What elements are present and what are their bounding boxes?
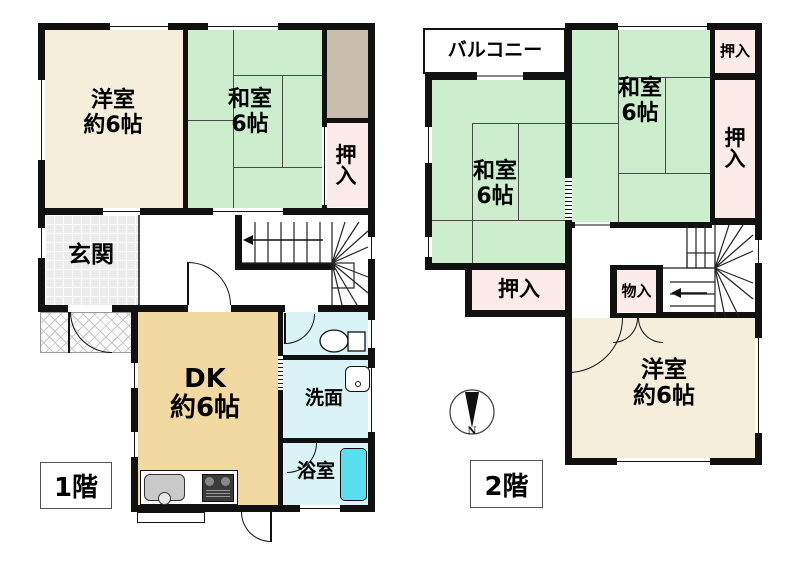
staircase-f1 xyxy=(235,215,375,305)
f1-storage-brown xyxy=(327,30,368,118)
f2-closet-bottom-label: 押入 xyxy=(479,275,559,305)
f2-closet-right-label: 押入 xyxy=(721,118,749,180)
sliding-door-marker xyxy=(565,177,572,220)
window-marker xyxy=(110,23,168,30)
window-marker xyxy=(38,228,45,258)
exterior-step xyxy=(137,512,205,523)
window-marker xyxy=(755,338,762,433)
wall-segment xyxy=(231,305,285,312)
window-marker xyxy=(131,432,138,457)
door-arc-dk-exterior xyxy=(241,512,271,542)
wall-segment xyxy=(278,390,283,505)
door-arc-dk xyxy=(188,262,231,305)
f2-western-room-label: 洋室 約6帖 xyxy=(605,353,723,415)
stove-grill xyxy=(206,490,230,498)
window-marker xyxy=(618,23,707,30)
wall-segment xyxy=(565,23,572,458)
tatami-line xyxy=(618,173,710,174)
window-marker xyxy=(425,127,432,163)
wall-segment xyxy=(38,23,375,30)
kitchen-faucet xyxy=(158,492,171,505)
sliding-door-marker xyxy=(103,208,140,215)
wall-segment xyxy=(656,265,663,318)
wall-segment xyxy=(610,265,617,318)
window-marker xyxy=(425,237,432,257)
door-leaf xyxy=(187,262,189,305)
wall-segment xyxy=(710,23,715,225)
stair-arrow-f1 xyxy=(243,235,253,245)
window-marker xyxy=(368,320,375,348)
window-marker xyxy=(38,80,45,160)
wall-segment xyxy=(38,23,45,312)
compass-north-label: N xyxy=(467,426,476,437)
wall-segment xyxy=(183,30,188,215)
wall-segment xyxy=(131,305,138,512)
wall-segment xyxy=(710,218,762,225)
door-leaf xyxy=(566,318,568,373)
f2-japanese-room-left-label: 和室 6帖 xyxy=(445,155,545,215)
tatami-line xyxy=(233,167,322,168)
f2-japanese-room-right-label: 和室 6帖 xyxy=(590,72,690,132)
tatami-line xyxy=(432,220,565,221)
f1-dk-label: DK 約6帖 xyxy=(147,360,263,428)
wall-segment xyxy=(425,72,477,80)
wall-segment xyxy=(565,222,575,228)
f1-entrance-label: 玄関 xyxy=(53,236,129,276)
f1-western-room-label: 洋室 約6帖 xyxy=(63,83,163,145)
door-leaf xyxy=(270,512,272,542)
f1-washroom-label: 洗面 xyxy=(288,386,360,412)
wall-segment xyxy=(131,305,188,312)
compass: N xyxy=(448,388,496,440)
f1-closet-label: 押入 xyxy=(331,138,361,194)
sliding-door-marker xyxy=(278,355,283,390)
sliding-door-marker xyxy=(213,208,283,215)
window-marker xyxy=(131,363,138,388)
window-marker xyxy=(617,458,710,465)
wall-segment xyxy=(710,73,755,80)
stair-arrow-f2 xyxy=(671,288,681,298)
f2-floor-label: 2階 xyxy=(470,460,543,508)
f1-bathroom-label: 浴室 xyxy=(285,459,347,485)
window-marker xyxy=(208,23,278,30)
f1-floor-label: 1階 xyxy=(40,462,112,509)
wall-segment xyxy=(278,312,283,355)
wall-segment xyxy=(318,305,375,312)
closet-door-marker xyxy=(322,127,327,205)
f2-balcony-label: バルコニー xyxy=(430,36,560,66)
wall-segment xyxy=(465,310,572,317)
wall-segment xyxy=(322,118,375,123)
wall-segment xyxy=(38,305,68,312)
stove-burner xyxy=(205,477,214,486)
toilet-icon xyxy=(318,325,368,359)
wall-segment xyxy=(112,305,138,312)
door-leaf xyxy=(284,313,286,344)
entrance-step-line xyxy=(138,215,140,305)
window-marker xyxy=(755,240,762,263)
stove-burner xyxy=(221,477,230,486)
sliding-door-marker xyxy=(575,222,610,228)
door-leaf xyxy=(68,312,70,353)
f2-storage-label: 物入 xyxy=(617,280,656,302)
window-marker xyxy=(300,505,340,512)
balcony-sliding-door-marker xyxy=(477,72,523,80)
wall-segment xyxy=(425,263,572,270)
f2-closet-top-label: 押入 xyxy=(716,40,754,62)
staircase-f2 xyxy=(663,225,755,317)
floor-plan: N 洋室 約6帖 和室 6帖 押入 玄関 DK 約6帖 洗面 浴室 1階 バルコ… xyxy=(0,0,800,570)
f1-japanese-room-label: 和室 6帖 xyxy=(200,83,300,143)
tatami-line xyxy=(233,75,322,76)
